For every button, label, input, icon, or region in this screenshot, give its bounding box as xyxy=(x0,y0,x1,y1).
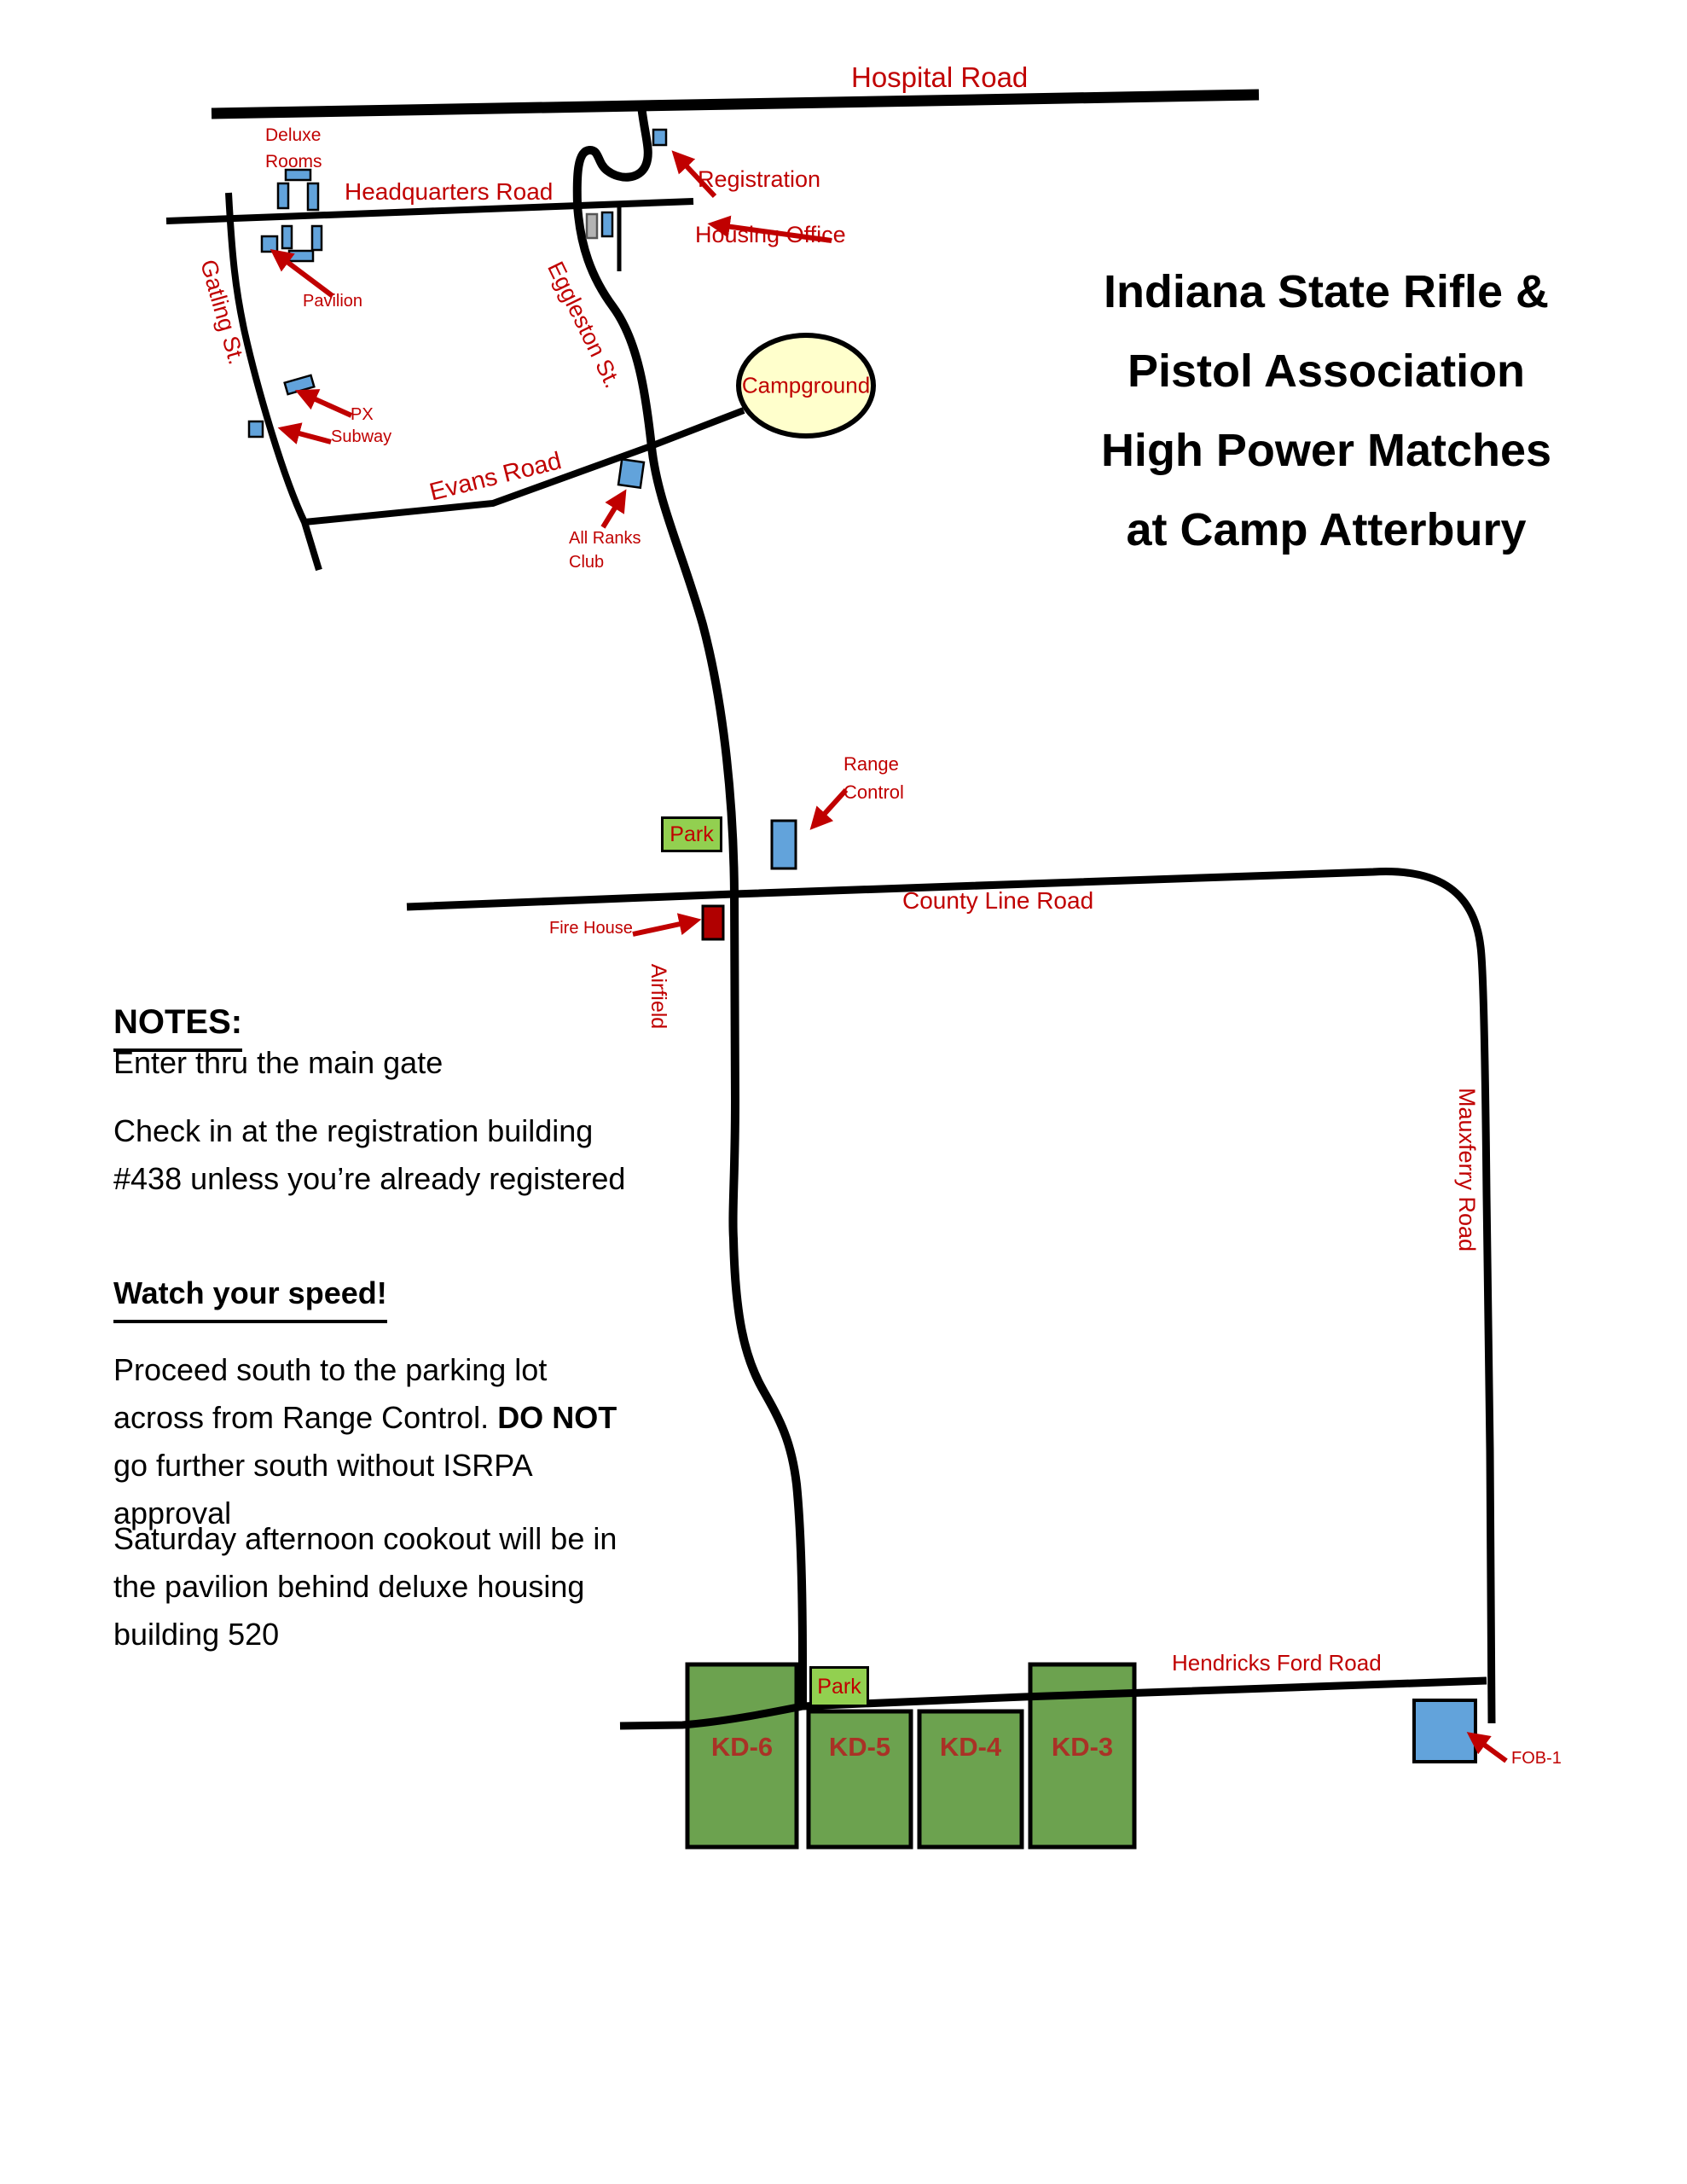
kd6-range-label: KD-6 xyxy=(711,1732,773,1763)
hospital-road-label: Hospital Road xyxy=(851,61,1028,95)
kd3-range-label: KD-3 xyxy=(1052,1732,1113,1763)
map-title-line: Indiana State Rifle & xyxy=(1032,253,1620,332)
range-control-label: Range Control xyxy=(843,750,904,806)
housing-office-building-blue xyxy=(602,212,612,236)
park-north-box: Park xyxy=(661,816,722,852)
county-line-road-label: County Line Road xyxy=(902,886,1093,915)
fob1-label: FOB-1 xyxy=(1511,1749,1562,1769)
deluxe-rooms-label: Deluxe Rooms xyxy=(265,122,322,175)
range-control-building xyxy=(772,821,796,868)
registration-label: Registration xyxy=(698,166,820,194)
note-cookout: Saturday afternoon cookout will be in th… xyxy=(113,1515,617,1658)
fire-house-arrow xyxy=(633,921,696,934)
subway-building xyxy=(249,421,263,437)
all-ranks-club-building xyxy=(618,459,644,487)
note-proceed-south-text: Proceed south to the parking lot across … xyxy=(113,1352,547,1435)
pavilion-label: Pavilion xyxy=(303,292,362,312)
registration-building xyxy=(653,130,666,145)
all-ranks-club-label: All Ranks Club xyxy=(569,526,641,574)
hospital-road xyxy=(212,95,1259,113)
park-north-label: Park xyxy=(670,822,713,847)
note-proceed-south: Proceed south to the parking lot across … xyxy=(113,1298,617,1537)
deluxe-rooms-building-2 xyxy=(278,183,288,208)
fob1-building xyxy=(1414,1700,1475,1762)
campground-label: Campground xyxy=(742,373,870,399)
all-ranks-club-arrow xyxy=(603,494,623,527)
kd4-range-label: KD-4 xyxy=(940,1732,1001,1763)
park-south-label: Park xyxy=(817,1675,861,1699)
fire-house-building xyxy=(703,906,723,939)
subway-label: Subway xyxy=(331,427,391,448)
pavilion-building xyxy=(262,236,277,252)
map-title: Indiana State Rifle & Pistol Association… xyxy=(1032,253,1620,570)
subway-arrow xyxy=(283,429,331,442)
px-label: PX xyxy=(351,405,374,426)
px-arrow xyxy=(300,392,351,415)
housing-office-building-gray xyxy=(587,214,597,238)
map-page: Indiana State Rifle & Pistol Association… xyxy=(0,0,1687,2184)
airfield-label: Airfield xyxy=(645,964,670,1029)
note-enter-gate: Enter thru the main gate xyxy=(113,1039,443,1087)
deluxe-rooms-building-3 xyxy=(308,183,318,210)
note-check-in: Check in at the registration building #4… xyxy=(113,1107,625,1203)
kd5-range-label: KD-5 xyxy=(829,1732,890,1763)
px-building xyxy=(285,375,315,394)
headquarters-road-label: Headquarters Road xyxy=(345,177,553,206)
fire-house-label: Fire House xyxy=(549,919,633,939)
hendricks-ford-road-label: Hendricks Ford Road xyxy=(1172,1650,1382,1676)
map-title-line: at Camp Atterbury xyxy=(1032,491,1620,570)
mauxferry-road-label: Mauxferry Road xyxy=(1452,1088,1480,1252)
range-control-arrow xyxy=(814,790,846,826)
pavilion-cluster-building-2 xyxy=(312,226,322,250)
park-south-box: Park xyxy=(809,1666,869,1707)
pavilion-cluster-building-1 xyxy=(282,226,292,248)
map-title-line: High Power Matches xyxy=(1032,411,1620,491)
campground-spur-road xyxy=(651,410,744,446)
housing-office-label: Housing Office xyxy=(695,222,846,249)
notes-heading: NOTES: xyxy=(113,950,242,1052)
pavilion-cluster-building-3 xyxy=(289,251,313,261)
map-title-line: Pistol Association xyxy=(1032,332,1620,411)
note-do-not-text: DO NOT xyxy=(497,1400,617,1435)
